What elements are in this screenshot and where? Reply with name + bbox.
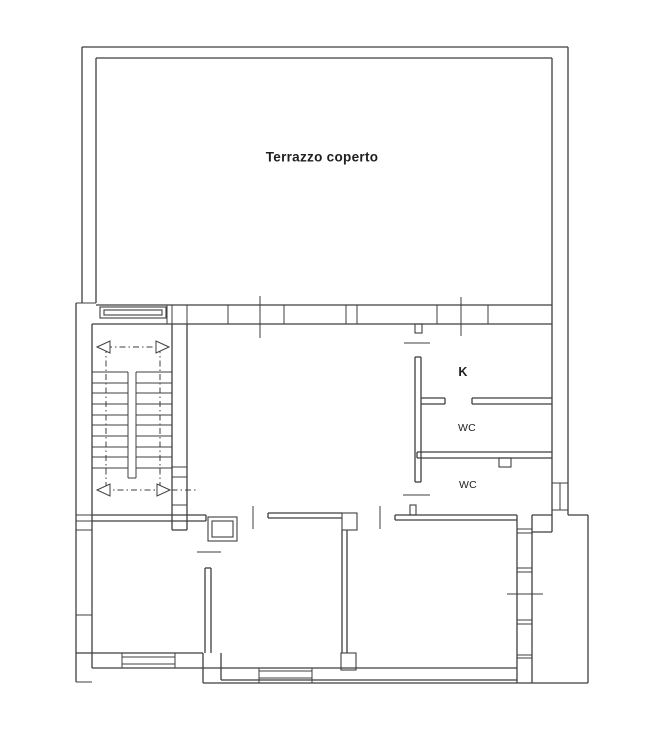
floorplan-page: Terrazzo coperto K WC WC (0, 0, 662, 738)
floorplan-drawing (0, 0, 662, 738)
wc-upper-label: WC (458, 422, 476, 434)
terrace-label: Terrazzo coperto (266, 150, 379, 165)
wc-lower-label: WC (459, 479, 477, 491)
kitchen-label: K (458, 365, 467, 379)
